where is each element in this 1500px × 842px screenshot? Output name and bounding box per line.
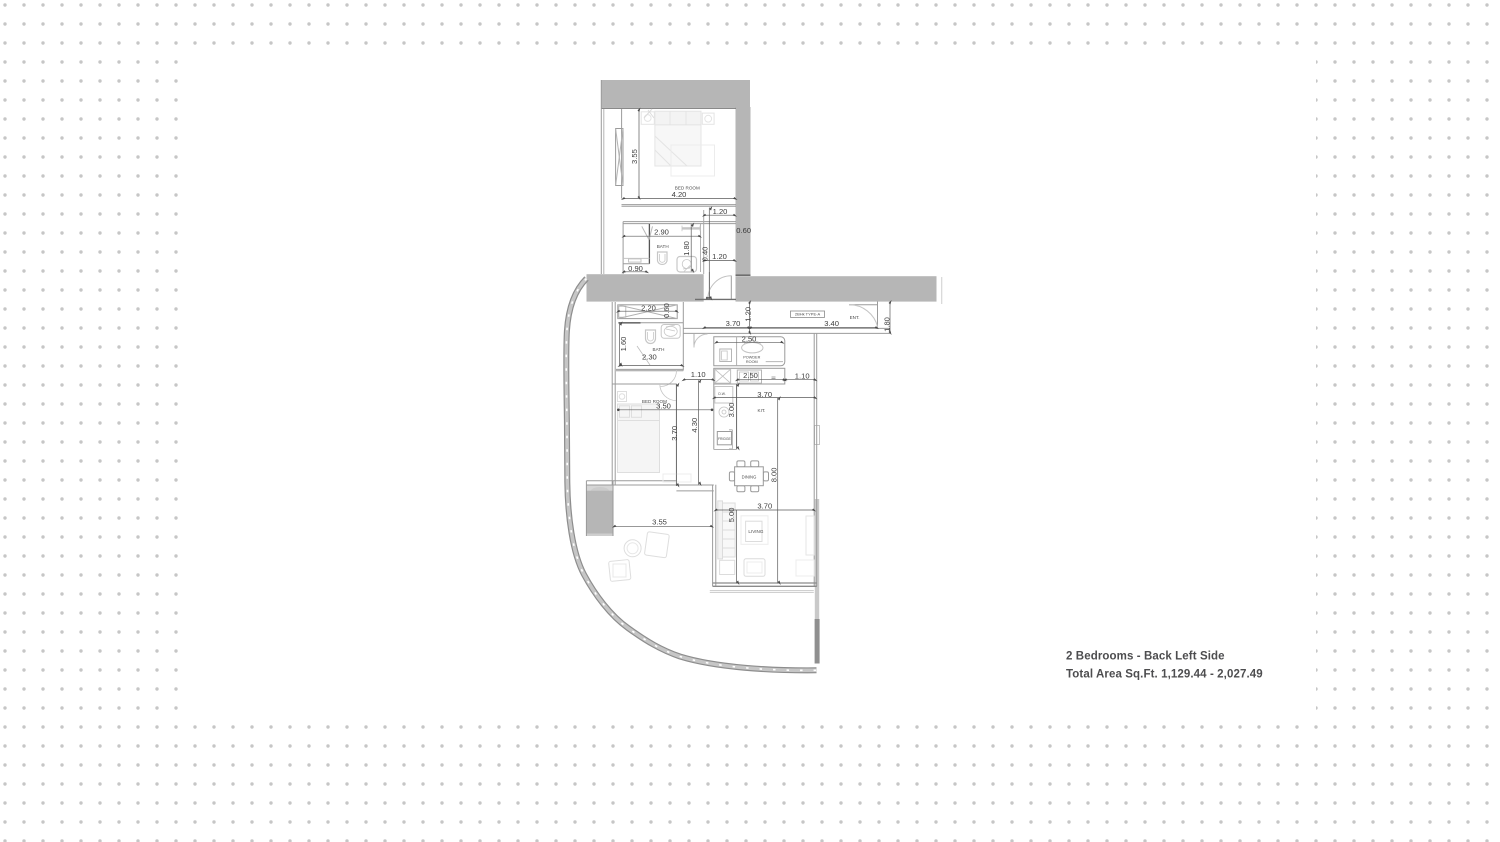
svg-text:3.70: 3.70 [726,319,741,328]
svg-text:BATH: BATH [653,347,665,352]
svg-text:8.00: 8.00 [769,468,778,483]
svg-text:2 Bedrooms - Back Left Side: 2 Bedrooms - Back Left Side [1066,651,1225,663]
svg-text:0.60: 0.60 [736,226,751,235]
svg-text:1.20: 1.20 [712,252,727,261]
svg-text:2.50: 2.50 [743,371,758,380]
svg-text:3.40: 3.40 [824,319,839,328]
svg-text:3.70: 3.70 [757,390,772,399]
svg-text:1.20: 1.20 [713,207,728,216]
svg-text:D.W.: D.W. [718,392,725,396]
svg-text:1.20: 1.20 [744,307,753,322]
svg-text:3.55: 3.55 [652,518,667,527]
svg-text:5.00: 5.00 [727,508,736,523]
svg-text:1.60: 1.60 [619,337,628,352]
svg-text:ROOM: ROOM [746,360,758,364]
svg-text:2.30: 2.30 [642,353,657,362]
svg-text:POWDER: POWDER [743,355,760,359]
svg-text:1.10: 1.10 [691,370,706,379]
svg-text:3.70: 3.70 [670,426,679,441]
svg-text:DINING: DINING [742,475,757,480]
svg-text:4.20: 4.20 [672,190,687,199]
svg-text:1.80: 1.80 [883,317,892,332]
svg-text:BATH: BATH [657,244,669,249]
svg-text:FRIDGE: FRIDGE [718,437,732,441]
svg-text:3.70: 3.70 [757,502,772,511]
svg-text:1.10: 1.10 [795,372,810,381]
svg-text:Total Area Sq.Ft. 1,129.44 - 2: Total Area Sq.Ft. 1,129.44 - 2,027.49 [1066,669,1263,681]
svg-text:KIT.: KIT. [758,408,766,413]
svg-text:4.30: 4.30 [690,418,699,433]
svg-text:BED ROOM: BED ROOM [642,399,667,404]
svg-text:LIVING: LIVING [748,529,763,534]
svg-text:3.00: 3.00 [727,403,736,418]
svg-text:0.40: 0.40 [701,247,710,262]
svg-text:2.90: 2.90 [654,228,669,237]
svg-text:2BHk TYPE-A: 2BHk TYPE-A [795,312,821,317]
svg-text:BED ROOM: BED ROOM [675,185,700,190]
svg-text:1.80: 1.80 [682,241,691,256]
svg-text:0.90: 0.90 [628,264,643,273]
svg-text:2.50: 2.50 [742,334,757,343]
svg-text:2.20: 2.20 [641,303,656,312]
svg-text:ENT.: ENT. [850,315,860,320]
svg-text:0.60: 0.60 [662,303,671,318]
svg-text:3.55: 3.55 [630,149,639,164]
